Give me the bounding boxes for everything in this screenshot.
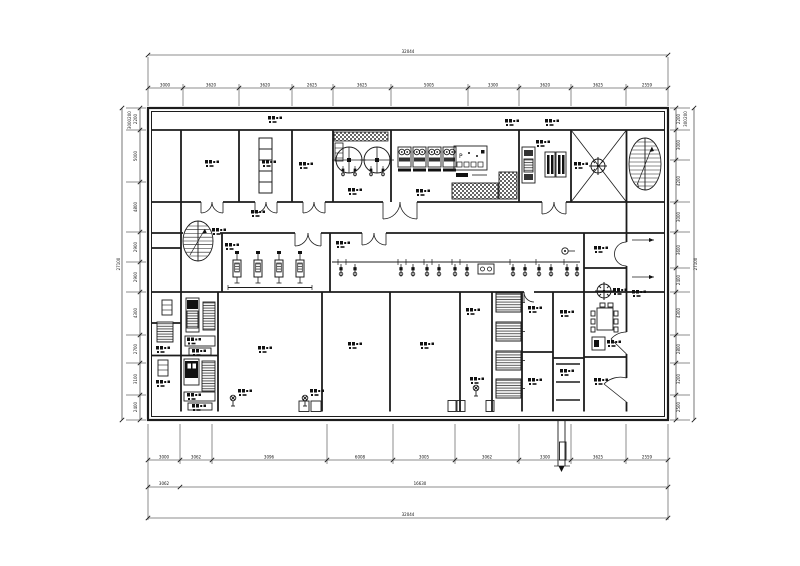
generator-unit — [413, 147, 426, 172]
room-label — [536, 140, 550, 147]
svg-text:2559: 2559 — [642, 455, 653, 460]
room-label — [225, 243, 239, 250]
svg-text:2900: 2900 — [133, 271, 138, 282]
svg-text:3620: 3620 — [540, 83, 551, 88]
drain-label — [470, 377, 484, 384]
heat-exchanger-room-lower — [184, 359, 215, 411]
shaft-room — [571, 130, 627, 202]
svg-text:2400: 2400 — [133, 401, 138, 412]
room-label — [594, 378, 608, 385]
svg-text:3625: 3625 — [593, 455, 604, 460]
svg-text:3000: 3000 — [160, 83, 171, 88]
svg-text:3625: 3625 — [593, 83, 604, 88]
control-panel: P — [454, 146, 487, 170]
room-label — [420, 342, 434, 349]
svg-text:2900: 2900 — [133, 241, 138, 252]
pump-room — [225, 243, 312, 290]
room-label — [262, 160, 276, 167]
equipment-label — [187, 338, 201, 345]
svg-text:4300: 4300 — [133, 307, 138, 318]
svg-text:3005: 3005 — [419, 455, 430, 460]
narrow-room — [466, 308, 484, 396]
svg-text:3600: 3600 — [676, 244, 681, 255]
svg-text:4300: 4300 — [676, 307, 681, 318]
svg-text:5005: 5005 — [424, 83, 435, 88]
room-label — [258, 346, 272, 353]
ahu-unit — [496, 293, 525, 312]
bottom-overall-dimension: 32044 — [146, 424, 670, 520]
room-label — [348, 188, 362, 195]
svg-text:300: 300 — [683, 119, 688, 127]
svg-text:3625: 3625 — [357, 83, 368, 88]
svg-text:6008: 6008 — [355, 455, 366, 460]
room-label — [156, 346, 170, 353]
drawing-canvas: 32044 3000 3620 3620 2625 3625 5005 3300… — [0, 0, 800, 566]
ahu-unit — [496, 351, 525, 370]
svg-text:3200: 3200 — [676, 373, 681, 384]
room-label — [205, 160, 219, 167]
pump-unit — [275, 251, 283, 283]
svg-text:3062: 3062 — [159, 481, 170, 486]
svg-text:2559: 2559 — [642, 83, 653, 88]
svg-text:2400: 2400 — [676, 274, 681, 285]
room-label — [299, 162, 313, 169]
svg-text:200: 200 — [683, 111, 688, 119]
generator-room: P — [398, 146, 517, 199]
left-overall-dimension: 27100 — [116, 106, 124, 422]
right-corridor — [632, 238, 654, 297]
ahu-unit — [496, 379, 525, 398]
corridor-label — [251, 210, 265, 217]
pump-unit — [254, 251, 262, 283]
floor-plan-drawing: 32044 3000 3620 3620 2625 3625 5005 3300… — [0, 0, 800, 566]
drain-label — [238, 389, 252, 396]
tank-room — [332, 132, 394, 195]
room-label — [545, 119, 559, 126]
right-chain-dimension: 2200 3000 4200 3000 3600 2400 4300 2800 … — [670, 106, 690, 422]
generator-unit — [398, 147, 411, 172]
room-label — [528, 378, 542, 385]
room-label — [336, 241, 350, 248]
stair-number: 1 — [637, 183, 640, 189]
svg-text:32044: 32044 — [402, 512, 415, 517]
room-label — [528, 306, 542, 313]
svg-text:3300: 3300 — [540, 455, 551, 460]
svg-text:2200: 2200 — [676, 113, 681, 124]
tank — [360, 147, 394, 173]
equipment-label — [187, 393, 201, 400]
svg-text:2625: 2625 — [307, 83, 318, 88]
fan-icon — [589, 157, 607, 175]
equipment: P — [156, 116, 661, 472]
generator-unit — [428, 147, 441, 172]
heat-exchanger-room-upper — [185, 298, 215, 356]
svg-text:5000: 5000 — [133, 150, 138, 161]
exterior-channel — [554, 420, 570, 472]
svg-text:200: 200 — [127, 111, 132, 119]
room-label — [594, 246, 608, 253]
electrical-trench — [452, 183, 498, 199]
bottom-chain-dimension: 3000 3062 3096 6008 3005 3062 3300 3625 … — [146, 424, 670, 464]
top-overall-dimension: 32044 — [146, 49, 670, 106]
left-chain-dimension: 2200 5000 4800 2900 2900 4300 2700 3100 … — [126, 106, 146, 422]
svg-text:4800: 4800 — [133, 201, 138, 212]
right-overall-dimension: 27100 — [692, 106, 698, 422]
electrical-trench — [499, 172, 517, 199]
room-label — [466, 308, 480, 315]
room-label — [574, 162, 588, 169]
floor-drain — [473, 385, 479, 396]
switchgear-room — [522, 140, 566, 183]
dimension-lines: 32044 3000 3620 3620 2625 3625 5005 3300… — [116, 49, 698, 520]
shelf-room — [556, 364, 580, 400]
stair-label — [212, 228, 226, 235]
room-label — [416, 189, 430, 196]
svg-text:3000: 3000 — [127, 118, 132, 129]
thresholds — [299, 401, 494, 412]
svg-text:3000: 3000 — [676, 139, 681, 150]
pipe-gallery — [332, 241, 580, 277]
top-chain-dimension: 3000 3620 3620 2625 3625 5005 3300 3620 … — [146, 83, 670, 107]
room-label — [156, 380, 170, 387]
ahu-unit — [496, 322, 525, 341]
svg-text:2200: 2200 — [133, 113, 138, 124]
bottom-sub-dimension: 3062 16630 — [146, 481, 670, 489]
svg-text:3620: 3620 — [206, 83, 217, 88]
svg-text:3000: 3000 — [676, 211, 681, 222]
svg-text:16630: 16630 — [414, 481, 427, 486]
svg-text:3096: 3096 — [264, 455, 275, 460]
spiral-stair-left — [183, 221, 226, 261]
equipment-label — [607, 340, 621, 347]
svg-text:3300: 3300 — [488, 83, 499, 88]
room-label — [560, 369, 574, 376]
corridor-label — [632, 290, 646, 297]
svg-text:4200: 4200 — [676, 175, 681, 186]
svg-text:3100: 3100 — [133, 373, 138, 384]
svg-text:3000: 3000 — [159, 455, 170, 460]
svg-text:2800: 2800 — [676, 343, 681, 354]
svg-text:27100: 27100 — [693, 257, 698, 270]
left-service-strip — [156, 300, 173, 387]
svg-text:2700: 2700 — [133, 343, 138, 354]
svg-text:3062: 3062 — [482, 455, 493, 460]
room-label — [348, 342, 362, 349]
room-label — [268, 116, 282, 123]
panel-letter: P — [459, 153, 463, 160]
large-hall — [230, 346, 324, 406]
floor-drain — [230, 395, 236, 406]
pump-unit — [233, 251, 241, 283]
fan-icon — [595, 282, 613, 300]
pump-unit — [296, 251, 304, 283]
room-label — [560, 310, 574, 317]
svg-text:3062: 3062 — [191, 455, 202, 460]
svg-text:2500: 2500 — [676, 401, 681, 412]
svg-text:27100: 27100 — [116, 257, 121, 270]
dim-top-overall: 32044 — [402, 49, 415, 54]
ahu-column — [496, 293, 525, 398]
svg-text:3620: 3620 — [260, 83, 271, 88]
spiral-stair-right: 1 — [629, 138, 661, 190]
room-label — [505, 119, 519, 126]
